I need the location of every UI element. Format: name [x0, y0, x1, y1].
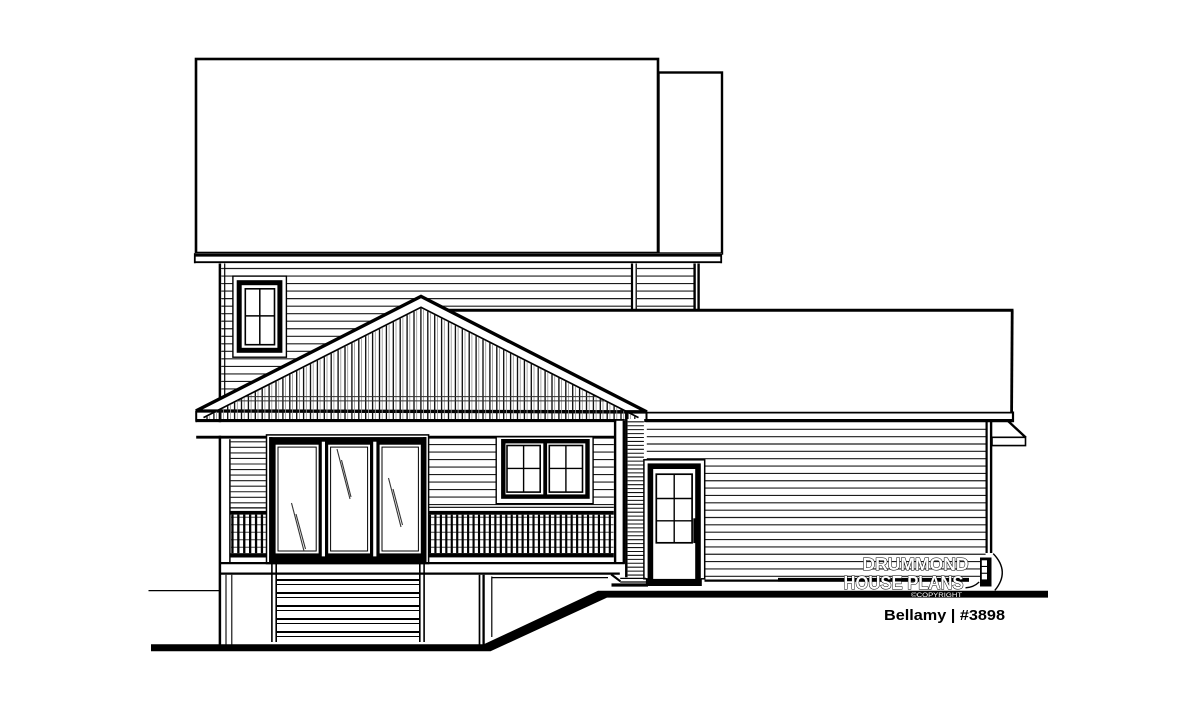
svg-text:Bellamy | #3898: Bellamy | #3898: [884, 607, 1005, 624]
svg-text:HOUSE PLANS: HOUSE PLANS: [844, 572, 964, 593]
svg-text:©COPYRIGHT: ©COPYRIGHT: [911, 592, 962, 599]
